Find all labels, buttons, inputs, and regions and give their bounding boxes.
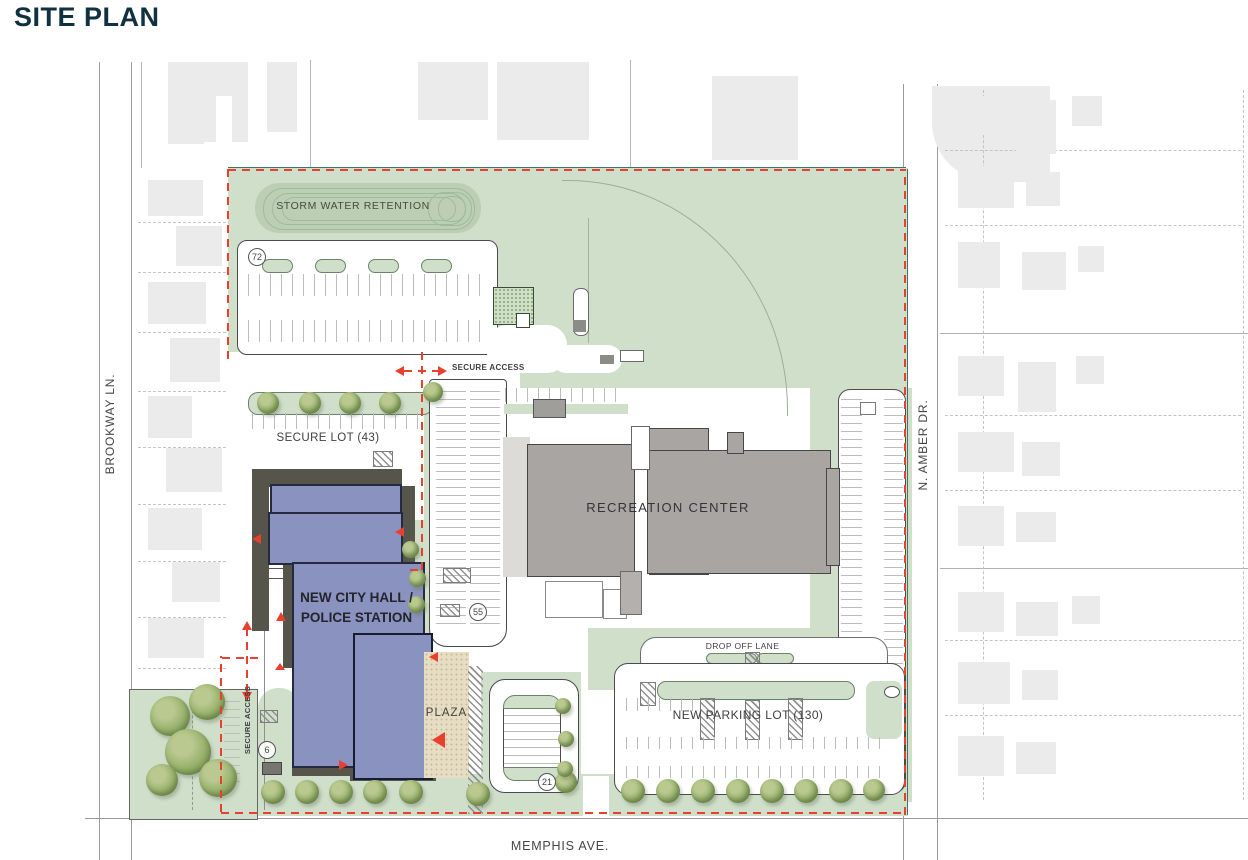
rec-annex: [620, 571, 642, 615]
context-building: [1072, 596, 1100, 624]
entry-arrow: [252, 534, 261, 544]
rec-entry-canopy: [533, 399, 566, 418]
context-building: [172, 562, 220, 602]
context-building: [168, 62, 204, 144]
context-building: [267, 62, 297, 132]
playground-structure: [516, 313, 530, 328]
tree: [829, 779, 853, 803]
gate-arrow-icon: [438, 366, 447, 376]
parcel-line: [138, 668, 226, 669]
road-amber-curb: [937, 84, 938, 860]
context-building: [200, 62, 248, 96]
tree: [295, 780, 319, 804]
context-building: [958, 432, 1014, 472]
rec-north-strip: [504, 404, 628, 414]
parcel-line: [138, 391, 226, 392]
secure-access-west-label: SECURE ACCESS: [241, 688, 253, 752]
stall-count-badge: 55: [469, 603, 487, 621]
context-building: [1022, 670, 1058, 700]
parking-stripes: [470, 386, 500, 624]
boundary-dashed-line: [221, 812, 906, 814]
street-line: [940, 568, 1248, 569]
street-line: [630, 60, 631, 168]
secure-perimeter-line: [410, 569, 423, 571]
service-pad: [262, 762, 282, 775]
tree: [261, 780, 285, 804]
recreation-center-label: RECREATION CENTER: [548, 499, 788, 515]
tree: [621, 779, 645, 803]
secure-access-north-label: SECURE ACCESS: [452, 363, 525, 372]
parcel-line: [945, 715, 1241, 716]
context-building: [958, 662, 1010, 704]
new-parking-label: NEW PARKING LOT (130): [658, 708, 838, 722]
secure-lot-label: SECURE LOT (43): [268, 431, 388, 444]
tree: [363, 780, 387, 804]
parcel-line: [945, 640, 1241, 641]
park-structure: [600, 355, 614, 364]
tree: [402, 541, 419, 558]
landscape-island: [368, 259, 399, 273]
context-building: [958, 166, 1014, 208]
tree: [399, 780, 423, 804]
parking-stripes: [248, 320, 486, 342]
road-brookway-curb: [99, 62, 100, 860]
crosswalk-hatch: [373, 451, 393, 467]
crosswalk-hatch: [440, 604, 460, 617]
context-building: [958, 506, 1004, 546]
parking-stripes: [436, 386, 466, 624]
tree: [557, 761, 573, 777]
gate-arrow-icon: [395, 366, 404, 376]
secure-perimeter-line: [421, 352, 423, 570]
tree: [466, 782, 490, 806]
context-building: [232, 96, 248, 142]
landscape-island: [315, 259, 346, 273]
driveway-gap: [583, 776, 609, 816]
street-line: [141, 62, 142, 168]
context-building: [418, 62, 488, 120]
context-building: [1072, 96, 1102, 126]
context-building: [712, 76, 798, 160]
tree: [299, 392, 321, 414]
stall-count-badge: 21: [538, 773, 556, 791]
landscape-island: [421, 259, 452, 273]
street-label-brookway: BROOKWAY LN.: [103, 364, 117, 484]
context-building: [200, 96, 216, 142]
tree: [558, 731, 574, 747]
context-building: [958, 96, 1004, 134]
context-building: [1078, 246, 1104, 272]
tree: [257, 392, 279, 414]
tree: [329, 780, 353, 804]
context-building: [170, 338, 220, 382]
tree: [423, 382, 443, 402]
landscape-island: [503, 695, 561, 709]
context-building: [166, 448, 222, 492]
landscape-island: [860, 402, 876, 415]
context-building: [958, 356, 1004, 396]
recreation-center-building: [826, 468, 840, 566]
tree: [863, 779, 885, 801]
building-shadow: [252, 487, 269, 631]
context-building: [148, 180, 203, 216]
context-building: [148, 282, 206, 324]
gate-arrow-icon: [242, 621, 252, 630]
city-hall-tower: [353, 633, 433, 780]
tree: [379, 392, 401, 414]
entry-arrow: [339, 760, 348, 770]
boundary-dashed-line: [228, 169, 906, 171]
parcel-line: [945, 415, 1241, 416]
context-building: [497, 62, 589, 140]
site-plan-canvas: SITE PLAN: [0, 0, 1248, 860]
rec-annex: [545, 581, 603, 618]
parcel-line: [945, 150, 1241, 151]
parcel-line: [945, 225, 1241, 226]
stall-count-badge: 72: [248, 248, 266, 266]
context-building: [1026, 172, 1060, 206]
city-hall-label-line1: NEW CITY HALL /: [300, 588, 413, 608]
grove-tree: [146, 764, 178, 796]
entry-arrow: [276, 612, 286, 621]
city-hall-label-line2: POLICE STATION: [301, 608, 412, 628]
storm-water-label: STORM WATER RETENTION: [270, 199, 436, 213]
context-building: [148, 396, 192, 438]
tree: [760, 779, 784, 803]
tree: [794, 779, 818, 803]
parcel-line: [138, 561, 226, 562]
street-line: [940, 333, 1248, 334]
gate-dashed-line: [404, 370, 438, 372]
context-building: [148, 508, 202, 550]
park-structure: [620, 350, 644, 362]
recreation-center-building: [727, 432, 744, 454]
context-building: [1016, 742, 1056, 774]
context-building: [958, 242, 1000, 288]
road-memphis-curb: [85, 818, 1248, 819]
parcel-line: [945, 490, 1241, 491]
rec-entry-slot: [631, 426, 650, 470]
secure-perimeter-line: [220, 656, 222, 812]
crosswalk-hatch: [260, 710, 278, 723]
tree: [339, 392, 361, 414]
street-label-amber: N. AMBER DR.: [916, 385, 930, 505]
parking-stripes: [626, 737, 884, 749]
city-hall-wing: [268, 512, 403, 565]
basin-contour: [438, 196, 466, 222]
street-label-memphis: MEMPHIS AVE.: [495, 838, 625, 854]
context-building: [958, 736, 1004, 776]
rec-entry-apron: [503, 437, 530, 577]
context-building: [1076, 356, 1104, 384]
gate-dashed-line: [246, 630, 248, 692]
context-building: [958, 592, 1004, 632]
city-hall-label: NEW CITY HALL / POLICE STATION: [292, 585, 421, 631]
context-building: [1022, 252, 1066, 290]
gate-dashed-line: [222, 657, 264, 659]
parcel-line: [1243, 90, 1244, 800]
parcel-line: [138, 332, 226, 333]
grove-tree: [199, 759, 237, 797]
tree: [691, 779, 715, 803]
parcel-line: [138, 272, 226, 273]
stall-count-badge: 6: [258, 741, 276, 759]
parcel-line: [138, 447, 226, 448]
pond-feature: [884, 686, 900, 698]
parcel-line: [138, 504, 226, 505]
context-building: [148, 618, 204, 658]
parcel-line: [138, 617, 226, 618]
context-building: [1018, 362, 1056, 412]
context-building: [1016, 100, 1056, 154]
boundary-dashed-line: [904, 169, 906, 815]
city-hall-wing: [270, 484, 402, 514]
entry-arrow: [432, 732, 445, 748]
entry-arrow: [429, 652, 438, 662]
park-structure: [573, 320, 586, 332]
tree: [555, 698, 571, 714]
context-building: [1016, 602, 1058, 636]
parking-stripes: [248, 274, 486, 296]
crosswalk-hatch: [443, 568, 471, 583]
page-title: SITE PLAN: [14, 2, 160, 33]
property-line: [907, 169, 908, 815]
context-building: [176, 226, 222, 266]
context-building: [1022, 442, 1060, 476]
plaza-label: PLAZA: [424, 706, 469, 719]
street-line: [310, 60, 311, 168]
landscape-island: [262, 259, 293, 273]
entry-arrow: [395, 527, 404, 537]
context-building: [1016, 512, 1056, 542]
tree: [726, 779, 750, 803]
parcel-line: [138, 222, 226, 223]
dropoff-label: DROP OFF LANE: [700, 640, 785, 651]
entry-arrow: [275, 663, 285, 670]
boundary-dashed-line: [227, 169, 229, 359]
parking-stripes: [252, 413, 428, 429]
tree: [656, 779, 680, 803]
parking-stripes: [626, 766, 884, 778]
property-line: [228, 167, 906, 168]
